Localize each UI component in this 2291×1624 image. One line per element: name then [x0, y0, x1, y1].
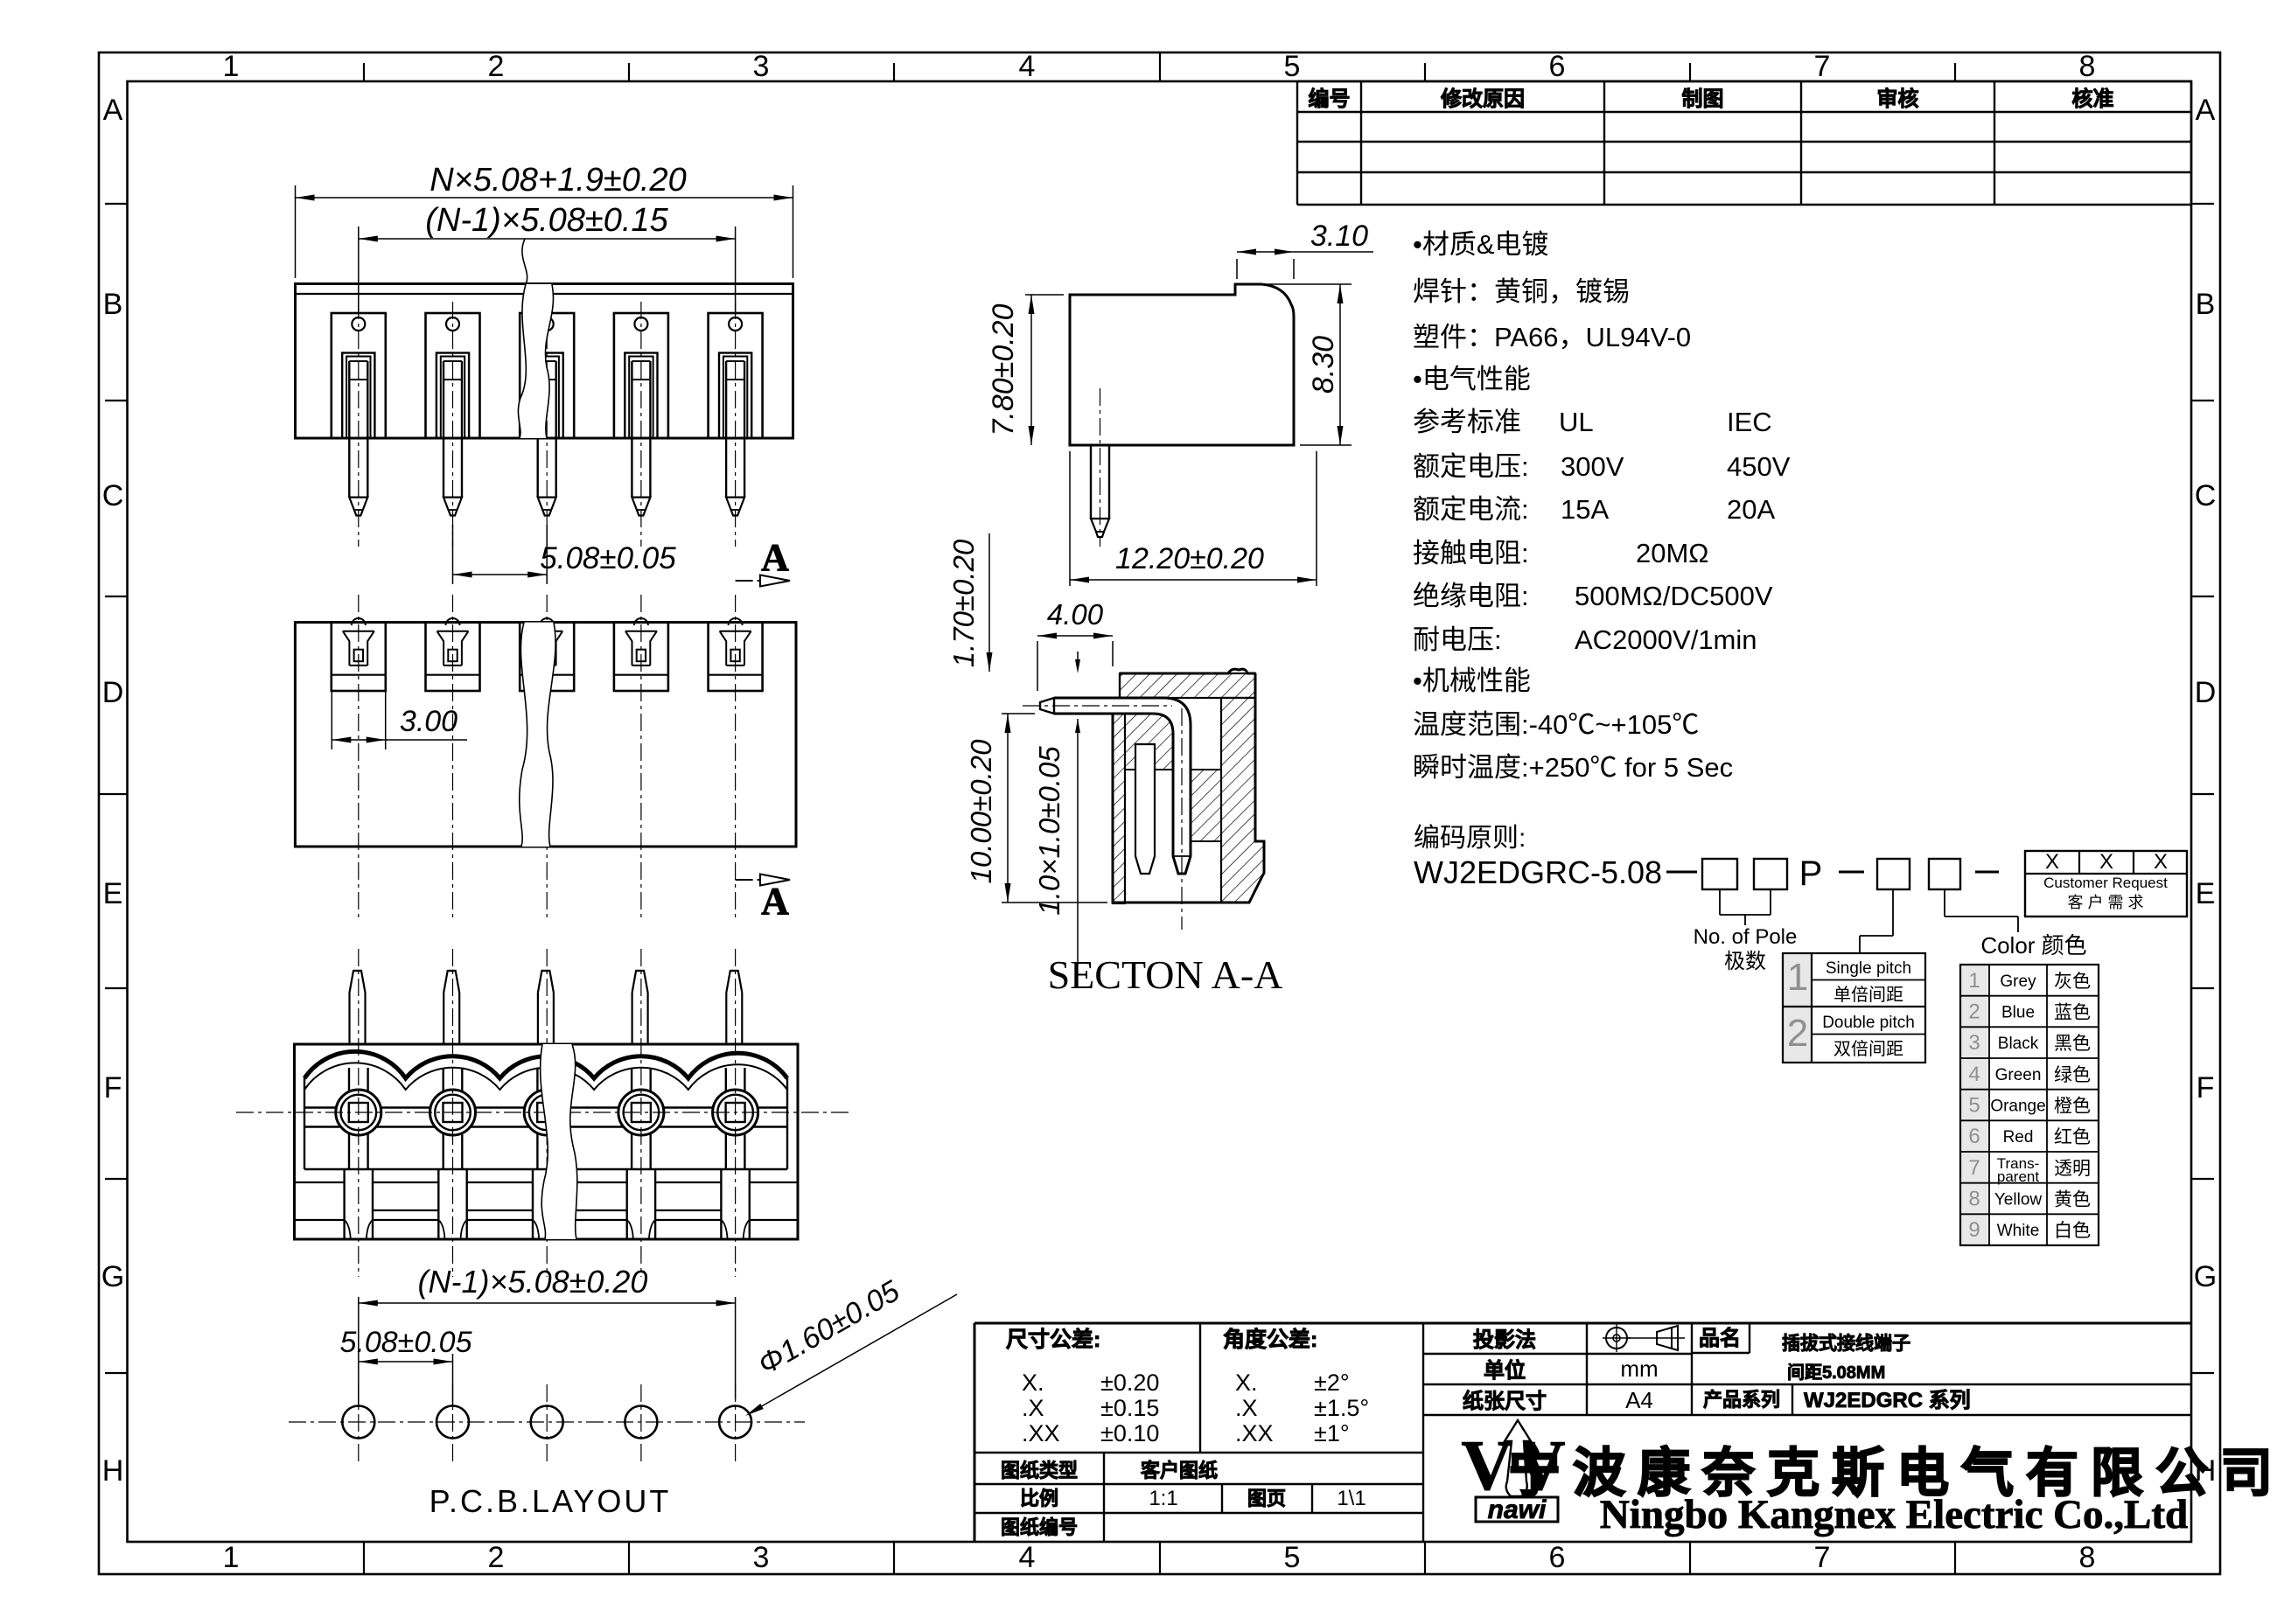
svg-text:图纸类型: 图纸类型 — [1001, 1460, 1078, 1481]
svg-text:8.30: 8.30 — [1307, 336, 1340, 394]
svg-text:7: 7 — [1968, 1156, 1980, 1180]
svg-text:8: 8 — [1968, 1188, 1980, 1211]
svg-text:V: V — [1461, 1425, 1512, 1505]
svg-text:300V: 300V — [1561, 451, 1624, 482]
svg-text:1: 1 — [1787, 956, 1808, 999]
svg-text:Grey: Grey — [2000, 972, 2036, 991]
svg-text:瞬时温度:+250℃ for 5 Sec: 瞬时温度:+250℃ for 5 Sec — [1413, 752, 1733, 783]
svg-text:6: 6 — [1968, 1125, 1980, 1148]
svg-text:N×5.08+1.9±0.20: N×5.08+1.9±0.20 — [430, 162, 686, 199]
svg-text:(N-1)×5.08±0.15: (N-1)×5.08±0.15 — [425, 202, 668, 239]
svg-text:±1.5°: ±1.5° — [1314, 1395, 1369, 1421]
svg-text:投影法: 投影法 — [1473, 1328, 1536, 1352]
svg-text:黑色: 黑色 — [2054, 1034, 2091, 1054]
svg-text:Double pitch: Double pitch — [1822, 1014, 1915, 1032]
svg-text:UL: UL — [1559, 407, 1594, 437]
svg-text:C: C — [102, 479, 124, 512]
svg-text:20A: 20A — [1727, 494, 1775, 525]
svg-text:±1°: ±1° — [1314, 1420, 1350, 1446]
svg-text:(N-1)×5.08±0.20: (N-1)×5.08±0.20 — [418, 1264, 648, 1300]
svg-text:绝缘电阻:: 绝缘电阻: — [1413, 581, 1529, 611]
svg-text:7: 7 — [1814, 1541, 1831, 1574]
svg-text:1: 1 — [1968, 969, 1980, 993]
svg-text:图页: 图页 — [1247, 1488, 1286, 1509]
svg-text:B: B — [103, 288, 123, 321]
svg-text:2: 2 — [1787, 1012, 1808, 1055]
svg-text:15A: 15A — [1561, 494, 1609, 525]
svg-text:8: 8 — [2079, 1541, 2096, 1574]
svg-text:3.00: 3.00 — [400, 705, 458, 738]
svg-text:角度公差:: 角度公差: — [1223, 1327, 1317, 1352]
svg-text:核准: 核准 — [2072, 87, 2114, 111]
svg-text:参考标准: 参考标准 — [1413, 407, 1521, 437]
svg-text:Blue: Blue — [2001, 1004, 2035, 1022]
svg-text:Green: Green — [1995, 1066, 2042, 1084]
svg-text:•机械性能: •机械性能 — [1413, 666, 1531, 696]
svg-text:双倍间距: 双倍间距 — [1833, 1039, 1903, 1059]
svg-text:产品系列: 产品系列 — [1703, 1389, 1780, 1411]
svg-text:修改原因: 修改原因 — [1440, 87, 1525, 111]
svg-text:±0.20: ±0.20 — [1100, 1370, 1159, 1396]
svg-text:客 户 需 求: 客 户 需 求 — [2067, 894, 2143, 911]
svg-text:1\1: 1\1 — [1337, 1487, 1366, 1510]
svg-text:灰色: 灰色 — [2054, 972, 2091, 992]
svg-text:编号: 编号 — [1309, 87, 1351, 111]
svg-text:No. of Pole: No. of Pole — [1694, 925, 1798, 949]
svg-text:纸张尺寸: 纸张尺寸 — [1463, 1389, 1547, 1413]
svg-text:500MΩ/DC500V: 500MΩ/DC500V — [1575, 581, 1773, 611]
svg-text:4: 4 — [1968, 1063, 1980, 1086]
svg-text:A4: A4 — [1625, 1387, 1653, 1413]
svg-text:白色: 白色 — [2054, 1221, 2091, 1241]
svg-text:D: D — [102, 676, 124, 709]
svg-text:3: 3 — [1968, 1031, 1980, 1055]
svg-text:Ningbo Kangnex Electric Co.,Lt: Ningbo Kangnex Electric Co.,Ltd — [1600, 1492, 2188, 1537]
svg-text:A: A — [761, 536, 789, 579]
svg-text:塑件：PA66，UL94V-0: 塑件：PA66，UL94V-0 — [1413, 322, 1691, 352]
svg-text:6: 6 — [1549, 50, 1566, 83]
svg-text:7: 7 — [1814, 50, 1831, 83]
svg-text:X: X — [2099, 850, 2113, 874]
svg-text:.XX: .XX — [1235, 1420, 1274, 1446]
svg-text:1:1: 1:1 — [1149, 1487, 1177, 1510]
svg-text:图纸编号: 图纸编号 — [1001, 1516, 1078, 1538]
svg-text:插拔式接线端子: 插拔式接线端子 — [1782, 1333, 1910, 1354]
svg-text:间距5.08MM: 间距5.08MM — [1787, 1363, 1885, 1383]
svg-text:P.C.B.LAYOUT: P.C.B.LAYOUT — [430, 1483, 672, 1519]
svg-text:接触电阻:: 接触电阻: — [1413, 538, 1529, 568]
svg-text:±0.10: ±0.10 — [1100, 1420, 1159, 1446]
svg-text:A: A — [103, 94, 123, 127]
svg-text:•材质&电镀: •材质&电镀 — [1413, 229, 1549, 260]
svg-text:P: P — [1799, 854, 1823, 893]
svg-text:2: 2 — [488, 1541, 505, 1574]
svg-text:透明: 透明 — [2054, 1159, 2091, 1179]
svg-text:1: 1 — [223, 50, 240, 83]
svg-text:蓝色: 蓝色 — [2054, 1003, 2091, 1023]
svg-text:B: B — [2196, 288, 2216, 321]
svg-text:极数: 极数 — [1724, 950, 1766, 973]
svg-text:±2°: ±2° — [1314, 1370, 1350, 1396]
svg-text:额定电压:: 额定电压: — [1413, 451, 1529, 482]
svg-text:耐电压:: 耐电压: — [1413, 624, 1502, 655]
svg-text:3: 3 — [753, 50, 770, 83]
svg-text:黄色: 黄色 — [2054, 1190, 2091, 1210]
svg-text:编码原则:: 编码原则: — [1414, 824, 1526, 853]
svg-text:Customer Request: Customer Request — [2043, 875, 2168, 891]
svg-text:F: F — [104, 1071, 122, 1105]
svg-text:4.00: 4.00 — [1047, 598, 1104, 631]
svg-text:审核: 审核 — [1877, 87, 1919, 111]
svg-text:G: G — [101, 1260, 124, 1293]
svg-text:±0.15: ±0.15 — [1100, 1395, 1159, 1421]
svg-text:2: 2 — [488, 50, 505, 83]
svg-text:单位: 单位 — [1484, 1358, 1526, 1383]
svg-text:Black: Black — [1998, 1035, 2039, 1053]
svg-text:A: A — [2196, 94, 2216, 127]
svg-text:6: 6 — [1549, 1541, 1566, 1574]
svg-text:2: 2 — [1968, 1000, 1980, 1024]
svg-text:Yellow: Yellow — [1994, 1191, 2043, 1209]
svg-text:Red: Red — [2003, 1128, 2034, 1147]
svg-text:Single pitch: Single pitch — [1826, 959, 1911, 978]
svg-text:3: 3 — [753, 1541, 770, 1574]
svg-text:客户图纸: 客户图纸 — [1141, 1460, 1218, 1481]
svg-text:5: 5 — [1284, 1541, 1301, 1574]
svg-text:•电气性能: •电气性能 — [1413, 364, 1531, 394]
svg-text:单倍间距: 单倍间距 — [1833, 985, 1903, 1005]
svg-text:F: F — [2197, 1071, 2215, 1105]
svg-text:C: C — [2195, 479, 2217, 512]
svg-text:1.0×1.0±0.05: 1.0×1.0±0.05 — [1033, 746, 1065, 916]
svg-text:X: X — [2154, 850, 2168, 874]
svg-text:品名: 品名 — [1699, 1326, 1741, 1350]
svg-text:1.70±0.20: 1.70±0.20 — [947, 539, 980, 667]
svg-text:X: X — [2045, 850, 2059, 874]
svg-text:红色: 红色 — [2054, 1127, 2091, 1147]
svg-text:橙色: 橙色 — [2054, 1097, 2091, 1117]
svg-text:3.10: 3.10 — [1310, 220, 1368, 253]
svg-text:H: H — [102, 1454, 124, 1488]
svg-text:12.20±0.20: 12.20±0.20 — [1115, 542, 1264, 575]
svg-text:A: A — [761, 880, 789, 923]
svg-text:WJ2EDGRC-5.08: WJ2EDGRC-5.08 — [1414, 854, 1662, 890]
svg-text:尺寸公差:: 尺寸公差: — [1006, 1327, 1100, 1352]
svg-text:Orange: Orange — [1990, 1098, 2045, 1116]
svg-text:20MΩ: 20MΩ — [1636, 538, 1708, 568]
svg-text:Color 颜色: Color 颜色 — [1980, 932, 2086, 958]
svg-text:焊针：黄铜，镀锡: 焊针：黄铜，镀锡 — [1413, 276, 1630, 307]
svg-text:D: D — [2195, 676, 2217, 709]
svg-text:1: 1 — [223, 1541, 240, 1574]
svg-text:绿色: 绿色 — [2054, 1065, 2091, 1085]
svg-text:5: 5 — [1968, 1094, 1980, 1118]
svg-text:5.08±0.05: 5.08±0.05 — [540, 541, 676, 575]
svg-text:SECTON A-A: SECTON A-A — [1048, 952, 1283, 997]
svg-text:E: E — [103, 877, 123, 910]
svg-text:.X: .X — [1022, 1395, 1044, 1421]
svg-text:10.00±0.20: 10.00±0.20 — [965, 739, 997, 884]
svg-text:G: G — [2194, 1260, 2217, 1293]
svg-text:E: E — [2196, 877, 2216, 910]
svg-text:mm: mm — [1620, 1356, 1658, 1382]
svg-text:AC2000V/1min: AC2000V/1min — [1575, 624, 1757, 655]
svg-text:.XX: .XX — [1022, 1420, 1060, 1446]
svg-text:White: White — [1997, 1222, 2040, 1240]
svg-text:额定电流:: 额定电流: — [1413, 494, 1529, 525]
svg-text:450V: 450V — [1727, 451, 1791, 482]
svg-text:4: 4 — [1019, 50, 1036, 83]
svg-text:5: 5 — [1284, 50, 1301, 83]
svg-text:8: 8 — [2079, 50, 2096, 83]
svg-text:9: 9 — [1968, 1218, 1980, 1242]
svg-text:比例: 比例 — [1020, 1488, 1058, 1509]
svg-text:7.80±0.20: 7.80±0.20 — [987, 303, 1020, 436]
svg-text:X.: X. — [1235, 1370, 1258, 1396]
svg-text:温度范围:-40℃~+105℃: 温度范围:-40℃~+105℃ — [1413, 709, 1699, 740]
svg-text:WJ2EDGRC 系列: WJ2EDGRC 系列 — [1804, 1389, 1971, 1412]
svg-text:IEC: IEC — [1727, 407, 1772, 437]
svg-text:4: 4 — [1019, 1541, 1036, 1574]
svg-text:制图: 制图 — [1682, 87, 1724, 111]
svg-text:.X: .X — [1235, 1395, 1258, 1421]
svg-text:X.: X. — [1022, 1370, 1044, 1396]
